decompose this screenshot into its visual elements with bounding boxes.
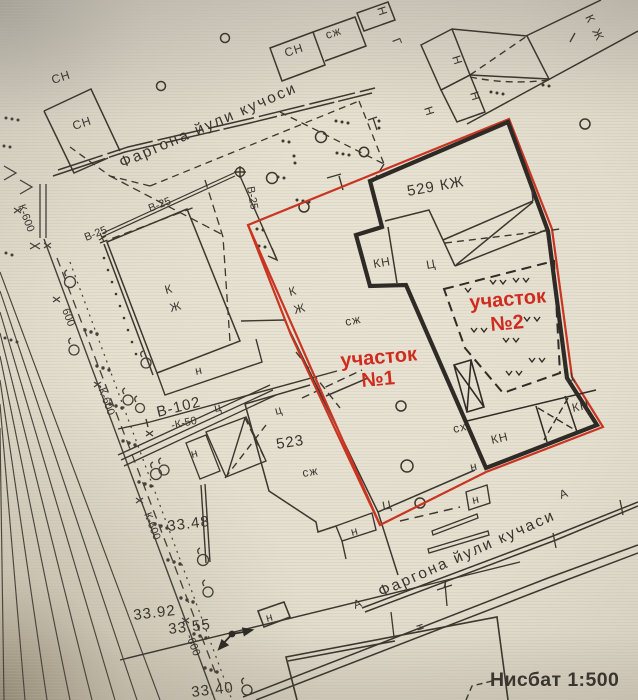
svg-text:№1: №1	[361, 367, 396, 392]
svg-text:№2: №2	[490, 311, 525, 336]
svg-text:сж: сж	[301, 464, 319, 480]
svg-text:Нисбат 1:500: Нисбат 1:500	[490, 669, 619, 691]
